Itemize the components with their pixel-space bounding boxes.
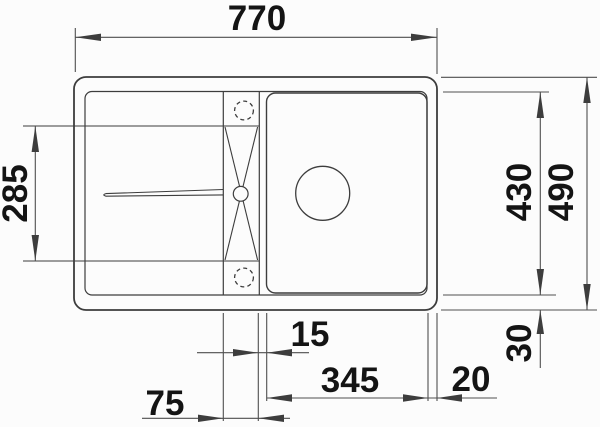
- arrow-15-right: [267, 349, 292, 356]
- dim-label-285: 285: [0, 164, 35, 222]
- dim-label-20: 20: [452, 360, 491, 399]
- arrow-345-left: [267, 394, 292, 401]
- arrow-285-down: [32, 235, 39, 261]
- dim-label-75: 75: [146, 384, 185, 423]
- drawing-svg: 770 285 430 490 15 345 20 30 75: [0, 0, 600, 427]
- sink-technical-drawing: 770 285 430 490 15 345 20 30 75: [0, 0, 600, 427]
- arrow-430-up: [537, 92, 544, 118]
- dim-label-430: 430: [500, 163, 539, 221]
- arrow-75-right: [258, 415, 284, 422]
- arrow-15-left: [233, 349, 258, 356]
- dim-label-345: 345: [321, 361, 379, 400]
- arrow-430-down: [537, 269, 544, 295]
- dimension-labels: 770 285 430 490 15 345 20 30 75: [0, 0, 581, 423]
- arrow-75-left: [198, 415, 223, 422]
- arrow-770-right: [411, 34, 437, 41]
- arrow-770-left: [75, 34, 101, 41]
- tap-hole-top-dashed: [235, 101, 254, 120]
- sink-outer-edge: [74, 77, 437, 310]
- sink-inner-rim: [85, 92, 427, 296]
- arrow-490-down: [583, 284, 590, 310]
- bowl-outline: [267, 93, 428, 293]
- dim-label-15: 15: [291, 315, 330, 354]
- arrow-490-up: [583, 77, 590, 103]
- drainer-groove: [104, 190, 224, 197]
- dim-label-770: 770: [228, 0, 286, 38]
- dim-label-30: 30: [500, 324, 539, 363]
- arrow-345-right: [403, 394, 428, 401]
- drain-hole-circle: [296, 166, 350, 220]
- hourglass-hub-circle: [233, 186, 248, 201]
- arrow-285-up: [32, 126, 39, 152]
- dim-label-490: 490: [542, 163, 581, 221]
- tap-hole-bottom-dashed: [235, 268, 254, 287]
- sink-outline: [23, 77, 437, 310]
